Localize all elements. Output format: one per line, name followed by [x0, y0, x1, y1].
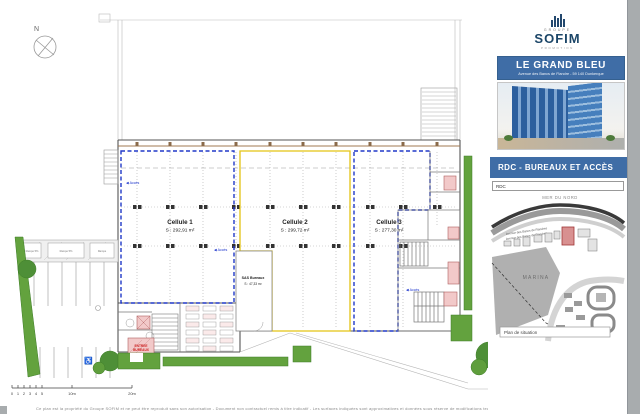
sofim-logo: GROUPE SOFIM PROMOTION: [488, 14, 627, 50]
disabled-parking-icon: ♿: [84, 356, 93, 365]
map-site-highlight: [562, 227, 574, 245]
bush-icon: [606, 135, 615, 141]
logo-name-label: SOFIM: [488, 32, 627, 45]
scale-tick-4: 4: [35, 391, 38, 396]
map-marina-label: MARINA: [523, 275, 550, 281]
sas-bureaux-room: SAS Bureaux S : 47,33 m²: [236, 251, 272, 331]
elevators-right: [444, 176, 459, 306]
scale-tick-3: 3: [29, 391, 32, 396]
map-caption: Plan de situation: [504, 330, 538, 335]
map-street-blocks: [556, 287, 614, 332]
cell-2-area: S : 299,72 m²: [281, 228, 310, 234]
situation-map: MER DU NORD Avenue des Bancs de Flandres…: [490, 193, 626, 343]
sofim-logo-icon: [488, 14, 627, 27]
sas-area: S : 47,33 m²: [244, 282, 261, 286]
elevator-left: [137, 316, 150, 329]
page-corner-bottom-left: [0, 406, 7, 414]
cell-1-outline: [121, 151, 234, 303]
cell-3-outline: [354, 151, 430, 331]
logo-tagline-label: PROMOTION: [488, 46, 627, 50]
building-foreground: [498, 138, 624, 149]
scale-tick-20m: 20m: [128, 391, 136, 396]
map-sea-label: MER DU NORD: [542, 195, 578, 200]
entrance-label-2: BUREAUX: [133, 348, 150, 352]
project-title-banner: LE GRAND BLEU Avenue des Bancs de Flandr…: [497, 56, 625, 80]
cell-1-area: S : 292,91 m²: [166, 228, 195, 234]
scale-tick-5: 5: [41, 391, 44, 396]
ramp-label-1: Rampe 5%: [26, 249, 40, 253]
cell-3-area: S : 277,30 m²: [375, 228, 404, 234]
upper-structure-lines: [99, 14, 462, 140]
scale-tick-1: 1: [17, 391, 20, 396]
project-address: Avenue des Bancs de Flandre - 59 140 Dun…: [498, 72, 624, 76]
cell-2-name: Cellule 2: [282, 219, 308, 226]
stair-core-right-a: [400, 242, 428, 266]
north-compass-icon: N: [34, 26, 56, 58]
project-title: LE GRAND BLEU: [498, 60, 624, 71]
plan-sheet: N: [0, 0, 640, 414]
sas-name: SAS Bureaux: [242, 276, 265, 280]
access-marker-1: ◀ Accès: [126, 181, 140, 185]
service-core-right: [398, 151, 460, 331]
stair-core-right-b: [414, 292, 444, 322]
project-info-panel: GROUPE SOFIM PROMOTION LE GRAND BLEU Ave…: [488, 0, 627, 414]
office-desks: [186, 306, 233, 351]
column-markers: [133, 205, 442, 248]
compass-north-label: N: [34, 26, 39, 33]
access-marker-3: ◀ Accès: [406, 288, 420, 292]
building-render-image: [497, 82, 625, 150]
ramp-label-2: Rampe 5%: [60, 249, 74, 253]
bush-icon: [504, 135, 513, 141]
section-title-banner: RDC - BUREAUX ET ACCÈS: [490, 157, 627, 178]
scale-bar: 0 1 2 3 4 5 10m 20m: [11, 385, 137, 396]
scale-tick-0: 0: [11, 391, 14, 396]
entrance-block: ENTREE BUREAUX: [118, 303, 233, 354]
stair-core-left: [152, 314, 178, 350]
entrance-canopy: ENTREE BUREAUX: [128, 338, 154, 354]
level-label-box: RDC: [492, 181, 624, 191]
cell-1-name: Cellule 1: [167, 219, 193, 226]
scale-tick-10m: 10m: [68, 391, 76, 396]
ramp-label-3: Rampe: [98, 249, 107, 253]
access-marker-2: ◀ Accès: [214, 248, 228, 252]
exterior-stair-left: [104, 150, 118, 184]
scale-tick-2: 2: [23, 391, 26, 396]
page-edge-right: [627, 0, 640, 414]
facade-band: [118, 142, 460, 146]
cell-3-name: Cellule 3: [376, 219, 402, 226]
